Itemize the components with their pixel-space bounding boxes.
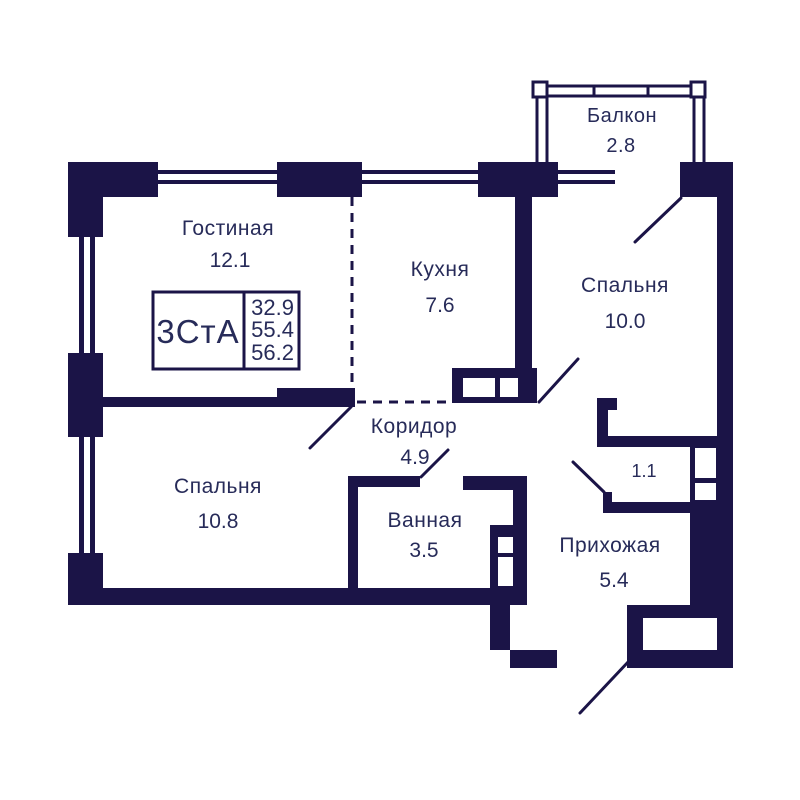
balcony-area: 2.8 bbox=[606, 135, 635, 157]
bedroom1-area: 10.0 bbox=[605, 310, 646, 333]
balcony-door-swing bbox=[635, 198, 681, 242]
bedroom1-door-post bbox=[597, 410, 608, 447]
bedroom1-bottom-wall bbox=[608, 436, 717, 447]
top-wall-segment bbox=[68, 162, 158, 197]
bedroom2-area: 10.8 bbox=[198, 510, 239, 533]
bedroom1-door-swing bbox=[539, 359, 578, 402]
kitchen-area: 7.6 bbox=[425, 294, 454, 317]
bathroom-left-wall bbox=[348, 476, 358, 588]
bedroom2-label: Спальня bbox=[174, 475, 262, 498]
bathroom-right-wall bbox=[513, 476, 527, 525]
balcony-label: Балкон bbox=[587, 105, 657, 127]
top-wall-segment bbox=[478, 162, 558, 197]
bathroom-label: Ванная bbox=[388, 509, 463, 532]
balcony-corner-post bbox=[533, 82, 547, 97]
duct-opening bbox=[695, 448, 716, 478]
bathroom-area: 3.5 bbox=[409, 539, 438, 562]
total-area-value: 56.2 bbox=[251, 340, 294, 365]
bottom-right-block-top bbox=[643, 605, 733, 618]
duct-opening bbox=[498, 557, 513, 586]
duct-opening bbox=[500, 378, 518, 397]
unit-info-box: 3СтА 32.9 55.4 56.2 bbox=[153, 292, 299, 369]
corridor-label: Коридор bbox=[371, 415, 457, 438]
floorplan-drawing: 3СтА 32.9 55.4 56.2 Гостиная 12.1 Кухня … bbox=[0, 0, 800, 800]
duct-opening bbox=[695, 483, 716, 500]
right-wall bbox=[717, 197, 733, 668]
bedroom1-label: Спальня bbox=[581, 274, 669, 297]
window-bedroom1 bbox=[558, 162, 615, 197]
living-bedroom2-wall bbox=[103, 397, 278, 407]
corridor-area: 4.9 bbox=[400, 446, 429, 469]
storage-door-swing bbox=[573, 462, 604, 492]
kitchen-label: Кухня bbox=[411, 258, 470, 281]
kitchen-bedroom1-wall bbox=[515, 197, 532, 368]
duct-opening bbox=[463, 378, 495, 397]
bottom-right-block-bottom bbox=[643, 650, 733, 668]
hallway-area: 5.4 bbox=[599, 569, 629, 592]
entry-wall-right bbox=[627, 605, 643, 668]
windows bbox=[68, 162, 615, 553]
entrance-door-swing bbox=[580, 661, 629, 713]
bathroom-top-wall bbox=[348, 476, 420, 487]
window-living bbox=[158, 162, 277, 197]
area-without-balcony-value: 55.4 bbox=[251, 317, 294, 342]
entry-wall-stub bbox=[510, 650, 557, 668]
duct-opening bbox=[498, 537, 513, 553]
storage-area: 1.1 bbox=[631, 461, 656, 481]
left-wall-segment bbox=[68, 353, 103, 437]
balcony-corner-post bbox=[691, 82, 705, 97]
floorplan-page: 3СтА 32.9 55.4 56.2 Гостиная 12.1 Кухня … bbox=[0, 0, 800, 800]
entry-wall-left bbox=[490, 605, 510, 650]
bedroom1-door-post bbox=[597, 398, 617, 410]
bottom-wall bbox=[68, 588, 510, 605]
living-room-label: Гостиная bbox=[182, 217, 274, 240]
hallway-label: Прихожая bbox=[559, 534, 660, 557]
window-living-side bbox=[68, 237, 103, 353]
window-bedroom2-side bbox=[68, 437, 103, 553]
storage-wall-stub bbox=[603, 492, 612, 513]
window-kitchen bbox=[362, 162, 478, 197]
partition-stub bbox=[340, 390, 355, 405]
living-room-area: 12.1 bbox=[210, 249, 251, 272]
bedroom2-door-swing bbox=[310, 407, 351, 448]
unit-code-label: 3СтА bbox=[156, 313, 239, 350]
top-wall-segment bbox=[277, 162, 362, 197]
top-wall-corner-block bbox=[680, 162, 733, 197]
